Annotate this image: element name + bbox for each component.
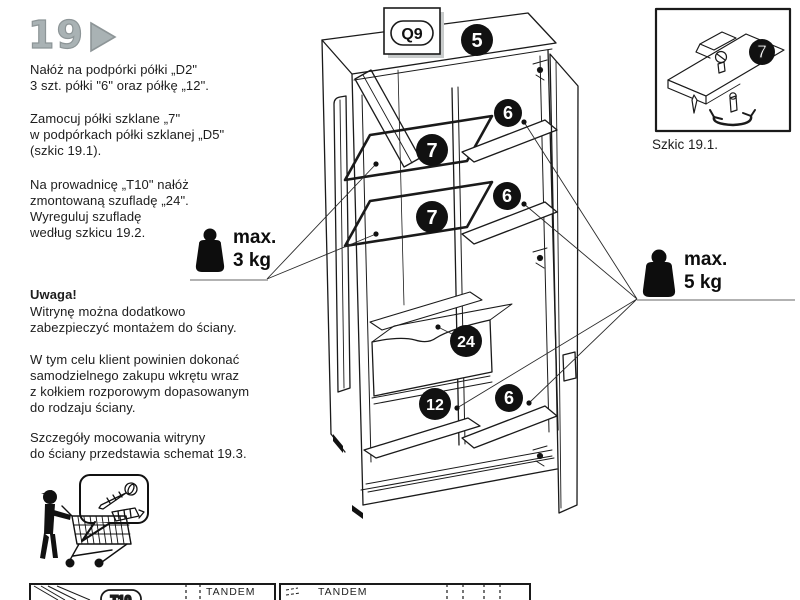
wall-plug-icon: [112, 508, 144, 521]
cabinet-diagram: [322, 13, 578, 519]
footer-right-box: [280, 584, 530, 600]
callout-top-panel: 5: [471, 30, 482, 52]
left-side-panel: [322, 40, 331, 434]
inset-szkic-19-1: 7: [656, 9, 790, 131]
callout-lines: [190, 119, 795, 410]
shopping-cart: [62, 506, 131, 568]
callout-shelf-bottom: 6: [504, 388, 514, 408]
center-divider: [452, 88, 459, 445]
inset-callout: 7: [757, 42, 767, 62]
door-handle: [563, 352, 576, 381]
callout-bottom-shelf: 12: [426, 397, 444, 414]
screw-icon: [99, 483, 137, 509]
weight-3kg-icon: [196, 229, 224, 273]
footer-left-box: [30, 584, 275, 600]
shopper-scene: [40, 475, 148, 568]
line-art-layer: 5 7 7 6 6 6 24 12 Q9: [0, 0, 800, 600]
callout-glass-shelf-upper: 7: [426, 140, 437, 162]
weight-5kg-icon: [643, 250, 675, 298]
footer-boxes: T10: [30, 584, 530, 600]
assembly-instruction-page: 19 Nałóż na podpórki półki „D2" 3 szt. p…: [0, 0, 800, 600]
hardware-tag-label: Q9: [401, 26, 422, 43]
speech-bubble: [80, 475, 148, 541]
hardware-tag-q9: Q9: [384, 8, 444, 58]
footer-left-tag: T10: [111, 593, 132, 600]
callout-shelf-top: 6: [503, 103, 513, 123]
callout-shelf-middle: 6: [502, 186, 512, 206]
callout-drawer: 24: [457, 334, 475, 351]
right-door-open: [550, 54, 578, 513]
callout-glass-shelf-lower: 7: [426, 207, 437, 229]
person-silhouette: [40, 490, 71, 559]
